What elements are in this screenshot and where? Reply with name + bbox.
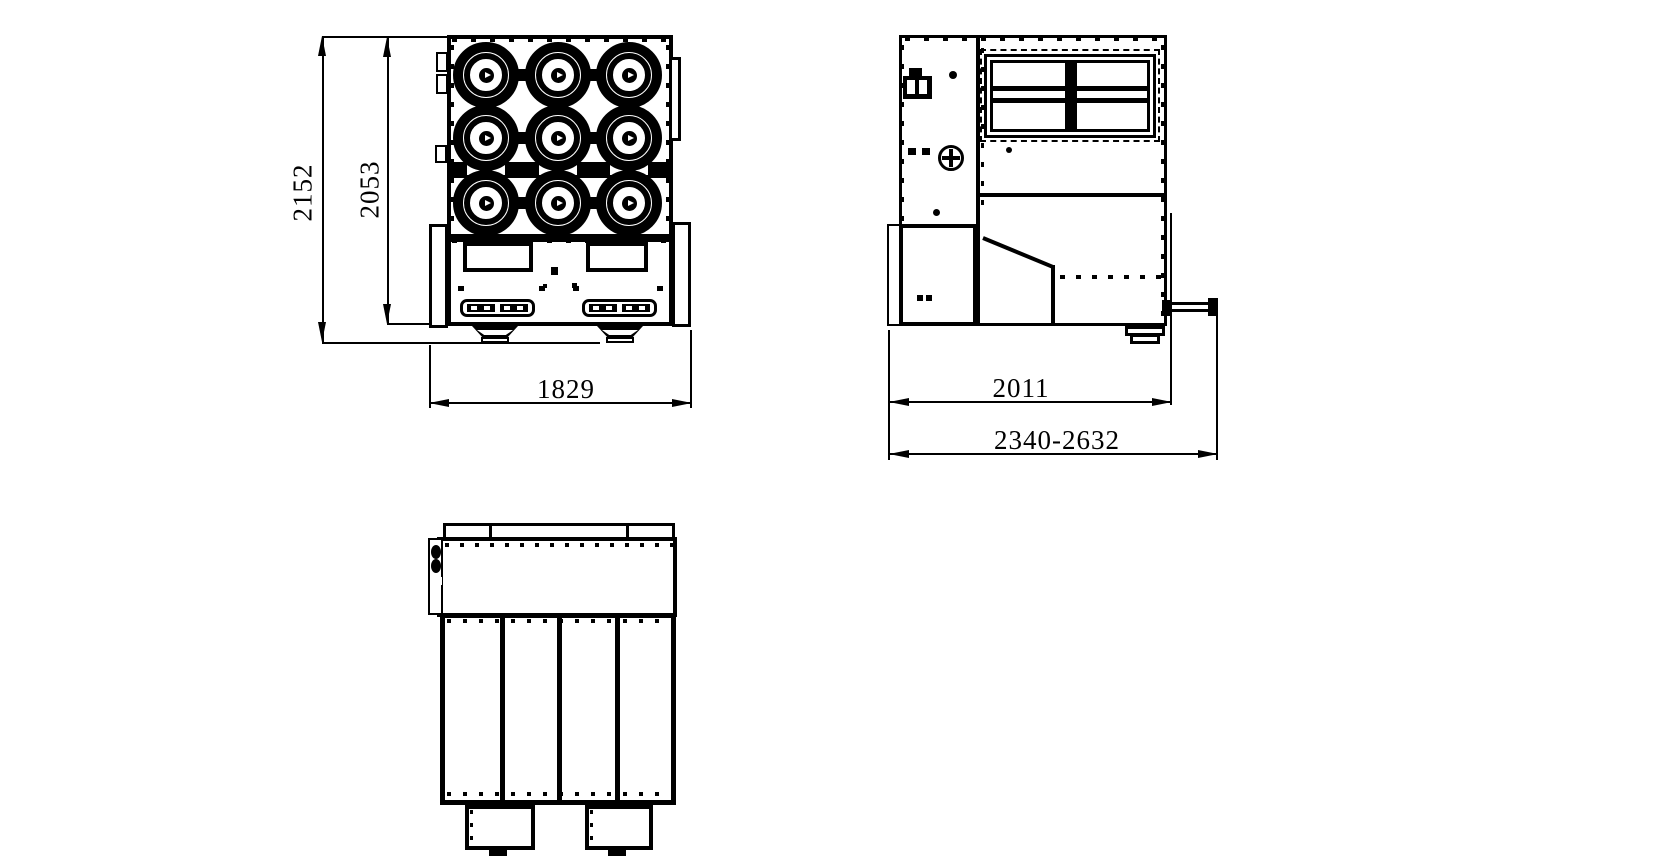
extension-line [888,330,890,460]
arrow-right-icon [672,399,692,407]
fork-slot [460,299,535,317]
clip-bump [431,559,441,573]
arrow-up-icon [318,36,326,56]
tangent-mark [517,197,527,209]
tab-nub [489,848,507,856]
lower-box [899,224,977,326]
tab-nub [608,848,626,856]
head-band-outline [437,537,677,617]
base-left-strip [429,224,448,328]
clip-bump [431,545,441,559]
rivet-ticks [470,810,473,844]
vent-opening [586,242,648,272]
arrow-right-icon [1152,398,1172,406]
tangent-mark [588,69,598,81]
bottom-tab [585,805,653,850]
chute-edge-line [1051,265,1055,326]
extension-line [1170,213,1172,405]
lock-knob-icon [938,145,964,171]
fork-slot [582,299,657,317]
machine-foot-base [1130,334,1160,344]
dim-label-body-height: 2053 [355,149,386,231]
ground-line [322,342,600,344]
window-rail [990,86,1150,91]
rivet-ticks [905,38,1163,41]
technical-drawing-canvas: 2152 2053 [0,0,1655,865]
weld-mark [551,267,558,275]
rivet-ticks [447,619,673,623]
dim-line-body-height [387,38,389,325]
arrow-left-icon [889,398,909,406]
dash-mark [908,148,916,155]
tangent-mark [481,100,491,110]
extension-line [1216,314,1218,460]
dim-line-overall-height [322,37,324,343]
weld-mark [458,286,464,291]
fan-roller [596,42,662,108]
dim-label-overall-height: 2152 [288,152,319,234]
fan-roller [596,105,662,171]
extension-line [690,330,692,408]
machine-foot [597,326,643,343]
dim-label-width: 1829 [506,374,626,405]
vent-opening [463,242,533,272]
tangent-mark [553,100,563,110]
rod-line [1167,309,1210,312]
weld-mark [657,286,663,291]
dash-mark [917,295,923,301]
rod-line [1167,302,1210,305]
dash-mark [926,295,932,301]
arrow-up-icon [383,37,391,57]
edge-fitting [436,52,448,72]
fan-roller [525,170,591,236]
fan-roller [453,105,519,171]
arrow-right-icon [1198,450,1218,458]
arrow-left-icon [889,450,909,458]
panel-divider [500,617,505,801]
arrow-down-icon [318,322,326,342]
window-mullion [1065,60,1077,132]
rivet-ticks [445,543,673,547]
fan-roller [453,170,519,236]
fan-roller [596,170,662,236]
arrow-left-icon [429,399,449,407]
panel-divider [557,617,562,801]
rivet-ticks [447,792,673,796]
mid-seam-line [980,193,1167,197]
dash-mark [922,148,930,155]
window-rail [990,98,1150,103]
bolt-dot [1006,147,1012,153]
edge-fitting [436,74,448,94]
clip-notch [437,577,442,585]
arrow-down-icon [383,304,391,324]
fan-roller [525,42,591,108]
door-handle-icon [903,76,932,99]
bolt-dot [949,71,957,79]
hidden-edge-dashes [1060,275,1163,279]
base-right-strip [672,222,691,327]
bottom-tab [465,805,535,850]
rivet-ticks [590,810,593,844]
body-bottom-extension-line [387,323,432,325]
weld-mark [573,286,579,291]
tangent-mark [624,100,634,110]
edge-rail-fitting [669,57,681,141]
edge-fitting [435,145,447,163]
panel-divider [615,617,620,801]
tangent-mark [588,197,598,209]
dim-label-depth-range: 2340-2632 [957,425,1157,456]
tangent-mark [588,132,598,144]
weld-mark [539,286,545,291]
machine-foot [472,326,518,343]
fan-roller [525,105,591,171]
tangent-mark [517,132,527,144]
fan-roller [453,42,519,108]
dim-label-depth: 2011 [951,373,1091,404]
tangent-mark [517,69,527,81]
bolt-dot [933,209,940,216]
